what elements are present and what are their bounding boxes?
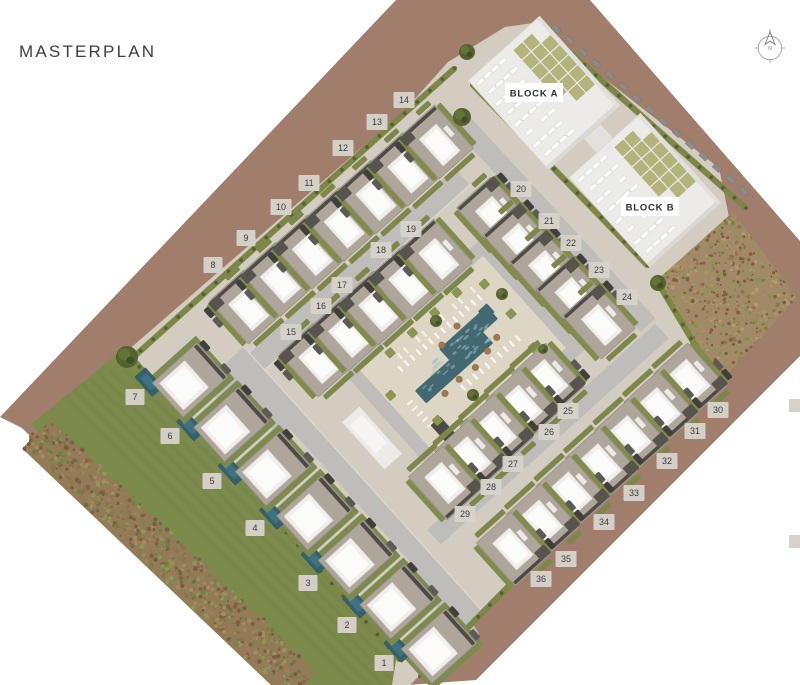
svg-text:35: 35 (561, 554, 571, 564)
svg-text:15: 15 (286, 327, 296, 337)
svg-text:8: 8 (210, 260, 215, 270)
svg-text:31: 31 (690, 426, 700, 436)
svg-text:30: 30 (713, 405, 723, 415)
svg-text:12: 12 (338, 143, 348, 153)
svg-text:26: 26 (544, 427, 554, 437)
svg-text:2: 2 (344, 620, 349, 630)
svg-text:36: 36 (536, 574, 546, 584)
svg-text:17: 17 (337, 280, 347, 290)
svg-text:21: 21 (544, 216, 554, 226)
svg-text:27: 27 (508, 459, 518, 469)
svg-text:29: 29 (460, 509, 470, 519)
svg-text:25: 25 (563, 406, 573, 416)
svg-text:3: 3 (305, 578, 310, 588)
svg-text:33: 33 (629, 488, 639, 498)
svg-text:6: 6 (167, 431, 172, 441)
svg-text:BLOCK A: BLOCK A (510, 89, 559, 100)
svg-text:14: 14 (399, 95, 409, 105)
svg-text:23: 23 (594, 265, 604, 275)
svg-text:4: 4 (252, 523, 257, 533)
svg-text:16: 16 (316, 301, 326, 311)
svg-text:1: 1 (381, 658, 386, 668)
svg-text:24: 24 (622, 292, 632, 302)
svg-text:18: 18 (376, 245, 386, 255)
svg-text:13: 13 (372, 117, 382, 127)
svg-text:20: 20 (516, 184, 526, 194)
svg-text:28: 28 (486, 482, 496, 492)
svg-text:7: 7 (132, 392, 137, 402)
svg-text:19: 19 (406, 224, 416, 234)
svg-text:10: 10 (276, 202, 286, 212)
svg-text:N: N (768, 46, 772, 52)
svg-text:9: 9 (243, 233, 248, 243)
svg-text:5: 5 (209, 476, 214, 486)
svg-text:22: 22 (566, 238, 576, 248)
svg-text:34: 34 (599, 517, 609, 527)
svg-text:BLOCK B: BLOCK B (626, 203, 675, 214)
svg-text:32: 32 (662, 456, 672, 466)
svg-text:MASTERPLAN: MASTERPLAN (19, 42, 156, 61)
svg-text:11: 11 (304, 178, 313, 188)
